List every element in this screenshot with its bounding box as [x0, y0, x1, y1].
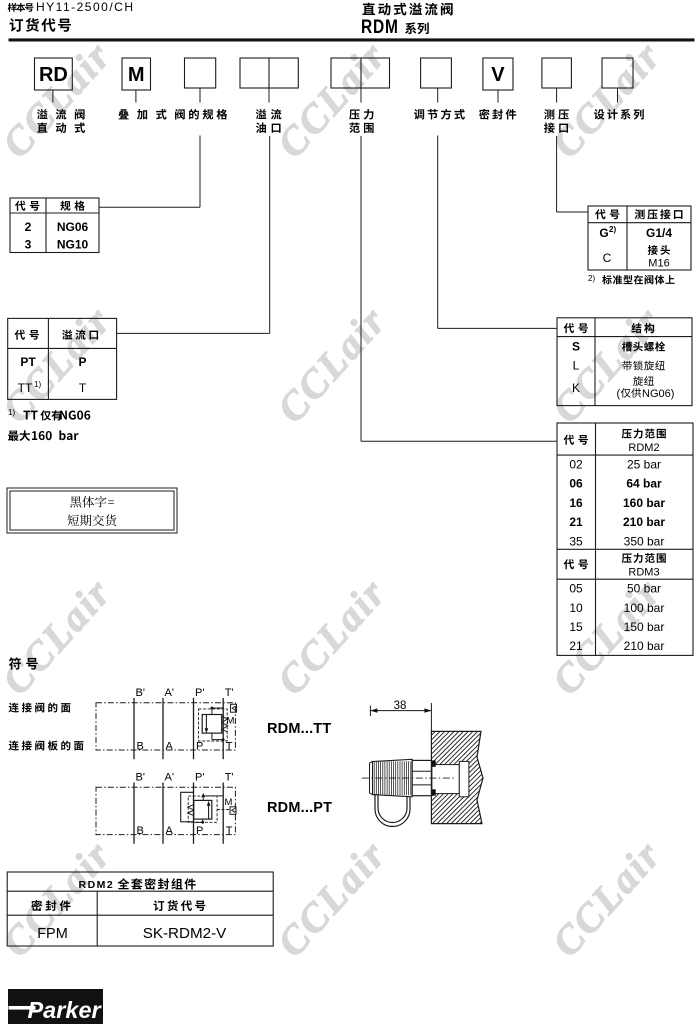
- svg-text:50 bar: 50 bar: [627, 582, 661, 596]
- svg-text:RDM3: RDM3: [628, 566, 659, 578]
- svg-text:=: =: [108, 496, 115, 510]
- svg-text:160 bar: 160 bar: [623, 496, 665, 510]
- svg-text:T: T: [79, 381, 87, 395]
- svg-text:S: S: [572, 340, 580, 354]
- svg-text:(: (: [617, 388, 621, 400]
- svg-text:M: M: [128, 64, 145, 86]
- svg-text:A': A': [165, 687, 174, 699]
- svg-text:35: 35: [569, 534, 583, 548]
- svg-text:PT: PT: [20, 355, 36, 369]
- svg-text:64 bar: 64 bar: [626, 477, 662, 491]
- svg-text:RDM2: RDM2: [628, 442, 659, 454]
- svg-text:05: 05: [569, 582, 583, 596]
- svg-text:NG06): NG06): [642, 388, 674, 400]
- svg-text:210 bar: 210 bar: [623, 515, 665, 529]
- svg-text:2): 2): [609, 225, 616, 234]
- svg-text:25 bar: 25 bar: [627, 458, 661, 472]
- svg-text:2): 2): [588, 274, 595, 283]
- svg-text:M: M: [227, 716, 235, 727]
- svg-text:L: L: [573, 359, 580, 373]
- svg-text:T: T: [226, 825, 233, 837]
- svg-text:10: 10: [569, 601, 583, 615]
- svg-text:SK-RDM2-V: SK-RDM2-V: [143, 925, 227, 942]
- svg-text:TT: TT: [18, 381, 33, 395]
- svg-text:A: A: [166, 741, 174, 753]
- svg-text:06: 06: [569, 477, 583, 491]
- svg-text:RDM...PT: RDM...PT: [267, 800, 332, 816]
- svg-text:P: P: [196, 825, 203, 837]
- svg-text:Parker: Parker: [28, 997, 103, 1023]
- svg-text:1): 1): [8, 408, 15, 417]
- svg-text:150 bar: 150 bar: [624, 620, 665, 634]
- svg-text:M: M: [225, 797, 233, 808]
- svg-text:P: P: [196, 741, 203, 753]
- svg-text:G: G: [599, 226, 608, 240]
- svg-text:A: A: [166, 825, 174, 837]
- svg-text:21: 21: [569, 515, 583, 529]
- svg-text:HY11-2500/CH: HY11-2500/CH: [36, 0, 134, 14]
- svg-text:1): 1): [34, 380, 41, 389]
- svg-text:M16: M16: [648, 258, 669, 270]
- svg-text:RDM...TT: RDM...TT: [267, 721, 331, 737]
- svg-text:B: B: [137, 825, 144, 837]
- svg-text:P': P': [195, 772, 204, 784]
- svg-text:T': T': [225, 772, 234, 784]
- svg-text:B': B': [136, 772, 145, 784]
- svg-text:RD: RD: [39, 64, 68, 86]
- svg-text:A': A': [165, 772, 174, 784]
- svg-text:2: 2: [25, 220, 32, 234]
- svg-text:210 bar: 210 bar: [624, 639, 665, 653]
- svg-text:B: B: [137, 741, 144, 753]
- svg-text:NG06: NG06: [57, 220, 89, 234]
- svg-text:100 bar: 100 bar: [624, 601, 665, 615]
- svg-text:350 bar: 350 bar: [624, 534, 665, 548]
- svg-text:3: 3: [25, 238, 32, 252]
- svg-text:P: P: [78, 355, 86, 369]
- svg-text:G1/4: G1/4: [646, 226, 672, 240]
- svg-text:V: V: [491, 64, 505, 86]
- svg-text:T': T': [225, 687, 234, 699]
- svg-text:B': B': [136, 687, 145, 699]
- svg-text:21: 21: [569, 639, 583, 653]
- svg-text:RDM: RDM: [361, 15, 399, 37]
- svg-text:P': P': [195, 687, 204, 699]
- svg-text:T: T: [226, 741, 233, 753]
- svg-text:02: 02: [569, 458, 583, 472]
- svg-text:15: 15: [569, 620, 583, 634]
- svg-text:NG10: NG10: [57, 238, 89, 252]
- svg-text:16: 16: [569, 496, 583, 510]
- svg-text:RDM2: RDM2: [79, 879, 115, 891]
- svg-text:C: C: [603, 251, 612, 265]
- svg-text:K: K: [572, 381, 580, 395]
- svg-text:FPM: FPM: [37, 926, 68, 942]
